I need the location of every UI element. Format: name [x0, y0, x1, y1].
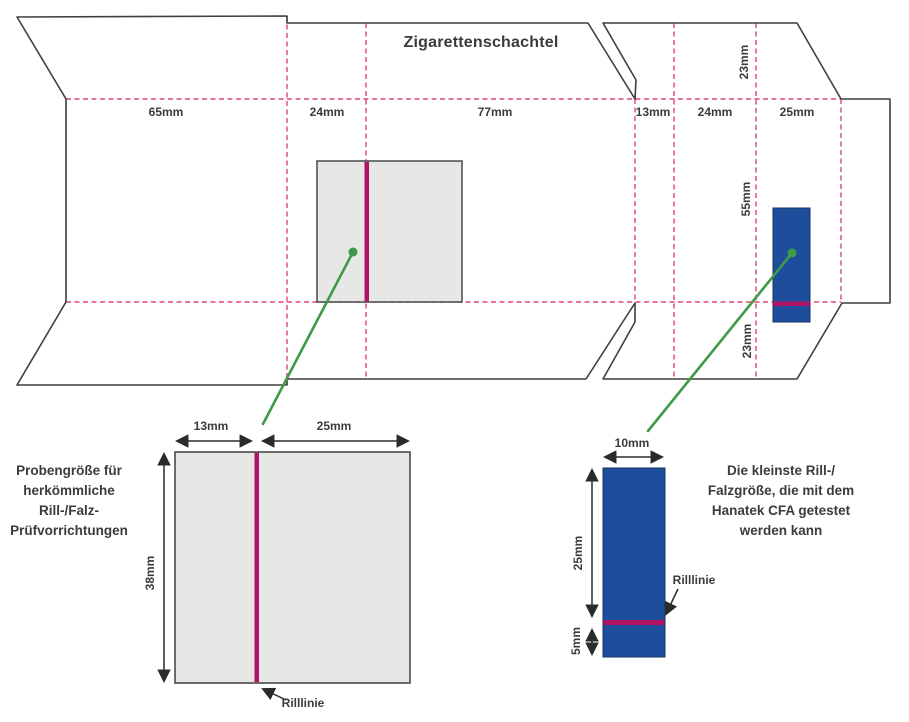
blue-sample-crease-line [773, 302, 810, 307]
left-sample-dim-38mm: 38mm [143, 556, 157, 591]
right-sample-caption: Die kleinste Rill-/ Falzgröße, die mit d… [671, 461, 891, 541]
side-height-23mm-bottom: 23mm [740, 324, 754, 359]
left-caption-line-2: herkömmliche [0, 481, 138, 501]
panel-width-77mm: 77mm [478, 105, 513, 119]
right-sample [603, 468, 665, 657]
panel-width-65mm: 65mm [149, 105, 184, 119]
left-sample-caption: Probengröße für herkömmliche Rill-/Falz-… [0, 461, 138, 541]
right-sample-dim-25mm: 25mm [571, 536, 585, 571]
left-sample-crease-line [255, 453, 260, 682]
left-sample [175, 452, 410, 683]
left-caption-line-3: Rill-/Falz- [0, 501, 138, 521]
panel-width-25mm: 25mm [780, 105, 815, 119]
template-blue-sample [773, 208, 810, 322]
pointer-line-left [263, 252, 353, 424]
right-sample-board [603, 468, 665, 657]
left-caption-line-1: Probengröße für [0, 461, 138, 481]
left-caption-line-4: Prüfvorrichtungen [0, 521, 138, 541]
right-sample-crease-line [604, 620, 665, 625]
diagram-title: Zigarettenschachtel [404, 34, 559, 52]
right-caption-line-3: Hanatek CFA getestet [671, 501, 891, 521]
technical-diagram: Zigarettenschachtel 65mm 24mm 77mm 13mm … [0, 0, 909, 722]
diagram-canvas [0, 0, 909, 722]
left-sample-dim-13mm: 13mm [194, 419, 229, 433]
side-height-55mm: 55mm [739, 182, 753, 217]
right-sample-dim-5mm: 5mm [569, 627, 583, 655]
right-caption-line-2: Falzgröße, die mit dem [671, 481, 891, 501]
side-height-23mm-top: 23mm [737, 45, 751, 80]
gray-sample-crease-line [365, 162, 370, 301]
panel-width-24mm-b: 24mm [698, 105, 733, 119]
left-sample-board [175, 452, 410, 683]
right-sample-crease-label: Rilllinie [673, 573, 716, 587]
pointer-line-right [648, 253, 792, 431]
panel-width-13mm: 13mm [636, 105, 671, 119]
right-crease-leader-arrow [666, 589, 678, 614]
right-caption-line-4: werden kann [671, 521, 891, 541]
left-sample-dim-25mm: 25mm [317, 419, 352, 433]
left-sample-crease-label: Rilllinie [282, 696, 325, 710]
pointer-dot-left [349, 248, 358, 257]
panel-width-24mm-a: 24mm [310, 105, 345, 119]
right-sample-dim-10mm: 10mm [615, 436, 650, 450]
right-caption-line-1: Die kleinste Rill-/ [671, 461, 891, 481]
pointer-dot-right [788, 249, 797, 258]
